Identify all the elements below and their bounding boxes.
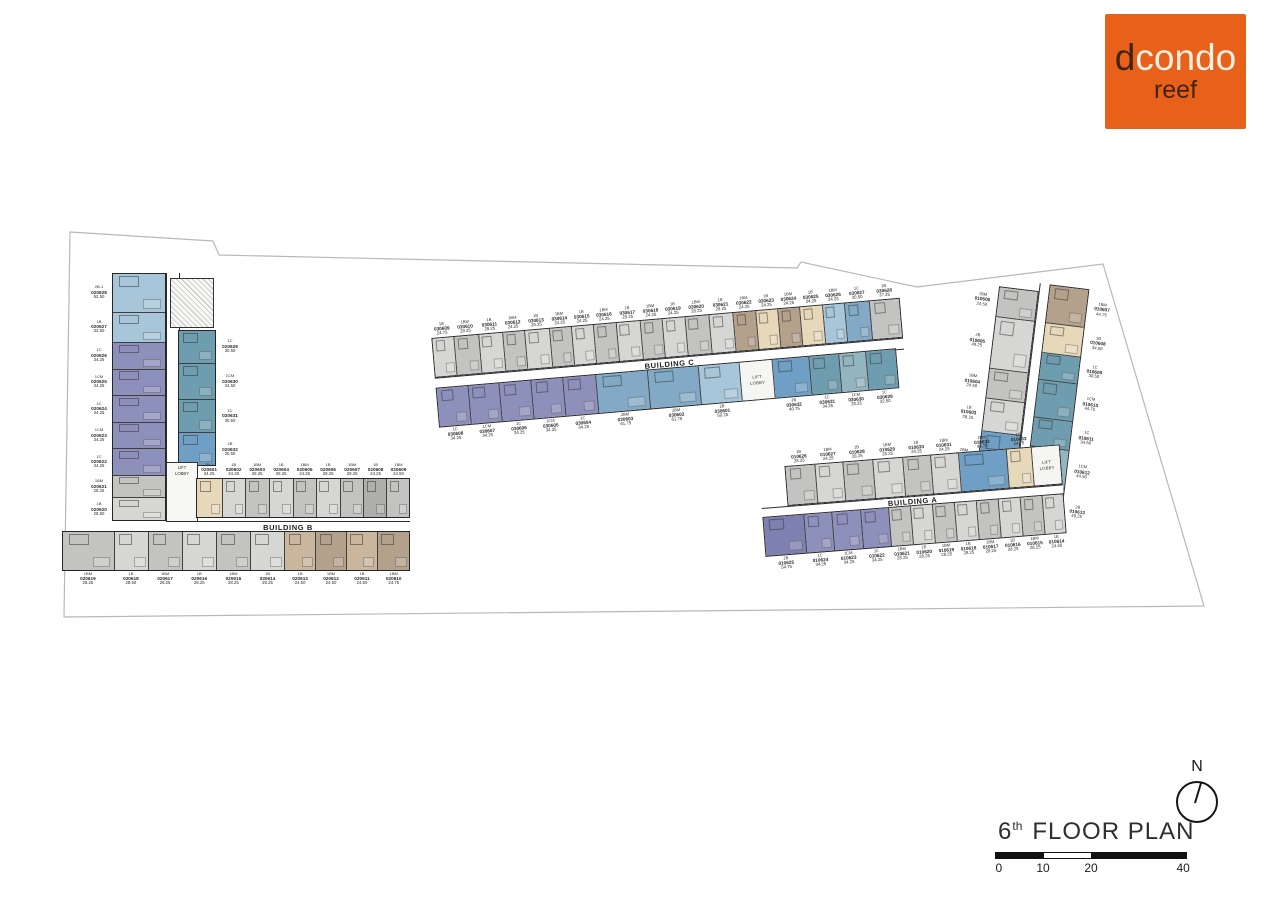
- logo-brand: dcondo: [1115, 39, 1236, 76]
- unit-label-020601: 2B-102060134.25: [196, 462, 222, 478]
- unit-label-strip: 1BM02061928.251B02061828.501BM02061728.2…: [62, 571, 410, 587]
- unit-label-strip: 1C02062930.501CM02063034.501C02063130.50…: [216, 330, 244, 466]
- unit-label-020614: 1B02061428.25: [250, 571, 284, 587]
- unit-020614: [251, 532, 285, 570]
- unit-010607: [1046, 286, 1088, 329]
- unit-010625: [763, 515, 807, 556]
- unit-010618: [955, 501, 980, 541]
- unit-label-020612: 1BM02061224.50: [316, 571, 347, 587]
- unit-010615: [1021, 496, 1046, 536]
- unit-020609: [387, 479, 409, 517]
- scale-bar-segments: [995, 852, 1187, 859]
- plan-title-text: FLOOR PLAN: [1032, 818, 1194, 845]
- unit-020616: [183, 532, 217, 570]
- unit-010610: [1034, 379, 1076, 422]
- building-b-top-row: 2B-102060134.251B02060224.251BM02060328.…: [196, 462, 410, 518]
- unit-block-strip: [196, 478, 410, 518]
- unit-label-010617: 1BM01061728.25: [979, 538, 1002, 556]
- unit-block-strip: [62, 531, 410, 571]
- unit-010617: [977, 499, 1002, 539]
- unit-label-020619: 1BM02061928.25: [62, 571, 114, 587]
- unit-label-020617: 1BM02061728.25: [148, 571, 182, 587]
- unit-label-010606: 1BM01060624.50: [966, 283, 999, 317]
- unit-010614: [1043, 494, 1066, 533]
- unit-010603: [982, 399, 1024, 436]
- unit-label-020613: 1B02061324.50: [285, 571, 316, 587]
- building-b-west-wing: 2B-102062852.501B02062732.501C02062634.2…: [86, 273, 166, 521]
- unit-label-020620: 1B02062028.50: [86, 498, 112, 521]
- scale-segment-0-10: [996, 853, 1044, 858]
- unit-label-010616: 1B01061628.25: [1001, 537, 1024, 555]
- unit-label-010622: 1C01062234.25: [862, 547, 891, 565]
- floor-plan-canvas: 1B03060924.751BM03061028.251B03061128.25…: [0, 0, 1280, 904]
- unit-label-010614: 1B01061424.50: [1045, 533, 1067, 551]
- lobby-label: LOBBY: [1039, 465, 1054, 471]
- unit-label-020627: 1B02062732.50: [86, 312, 112, 342]
- scale-segment-10-20: [1044, 853, 1092, 858]
- unit-010628: [843, 460, 876, 500]
- unit-label-010608: 1B01060834.50: [1081, 327, 1114, 360]
- unit-010624: [804, 512, 835, 552]
- unit-020608: [364, 479, 387, 517]
- unit-label-010620: 1B01062028.25: [913, 544, 936, 562]
- unit-010627: [816, 462, 846, 502]
- unit-010631: [931, 453, 961, 493]
- unit-label-020606: 1B02060628.25: [316, 462, 340, 478]
- scale-tick-20: 20: [1084, 861, 1097, 875]
- lobby-label: LOBBY: [175, 472, 189, 477]
- unit-010633: [1007, 448, 1035, 488]
- unit-label-010609: 1C01060930.50: [1078, 357, 1111, 388]
- unit-020617: [149, 532, 183, 570]
- north-indicator: N: [1166, 758, 1228, 824]
- unit-label-010610: 1CM01061044.75: [1073, 384, 1107, 426]
- unit-020631: [179, 400, 215, 433]
- unit-label-020630: 1CM02063034.50: [216, 363, 244, 399]
- north-arrow-icon: [1166, 776, 1228, 824]
- unit-010608: [1042, 323, 1083, 357]
- unit-label-010623: 1CM01062334.25: [834, 549, 863, 567]
- unit-020606: [317, 479, 341, 517]
- unit-label-020625: 1CM02062534.25: [86, 369, 112, 396]
- unit-010616: [999, 498, 1024, 538]
- unit-label-020608: 1B02060824.25: [364, 462, 387, 478]
- unit-020622: [113, 449, 165, 475]
- logo-reef-text: reef: [1154, 76, 1197, 105]
- unit-020610: [378, 532, 409, 570]
- unit-label-010625: 2B01062554.75: [766, 554, 808, 573]
- unit-label-020607: 1BM02060728.25: [340, 462, 364, 478]
- unit-010623: [833, 510, 864, 550]
- scale-ticks: 0 10 20 40: [995, 859, 1187, 875]
- unit-010619: [933, 503, 958, 543]
- unit-label-010619: 1BM01061928.25: [935, 542, 958, 560]
- unit-010630: [904, 456, 934, 496]
- unit-020601: [197, 479, 223, 517]
- unit-020607: [341, 479, 365, 517]
- unit-020618: [115, 532, 149, 570]
- unit-020613: [285, 532, 316, 570]
- scale-bar: 0 10 20 40: [995, 852, 1187, 875]
- unit-label-020605: 1BM02060524.25: [293, 462, 316, 478]
- building-b-lift-lobby: LIFT LOBBY: [166, 462, 198, 525]
- unit-label-010612: 1CM01061244.50: [1065, 451, 1099, 493]
- building-b-stairs: [170, 278, 214, 328]
- unit-label-020623: 1CM02062334.25: [86, 422, 112, 449]
- unit-020630: [179, 364, 215, 400]
- unit-label-010621: 1BM01062128.25: [890, 545, 913, 563]
- scale-tick-10: 10: [1036, 861, 1049, 875]
- unit-label-010603: 1B01060328.25: [952, 394, 986, 431]
- unit-020619: [63, 532, 115, 570]
- unit-label-010615: 1BM01061528.25: [1023, 535, 1046, 553]
- unit-020632: [179, 433, 215, 465]
- building-b-bottom-row: 1BM02061928.251B02061828.501BM02061728.2…: [62, 531, 410, 587]
- unit-010604: [986, 369, 1027, 403]
- unit-020605: [294, 479, 317, 517]
- unit-010622: [861, 508, 892, 548]
- unit-020621: [113, 476, 165, 499]
- unit-label-020631: 1C02063130.50: [216, 400, 244, 433]
- unit-label-strip: 2B-102060134.251B02060224.251BM02060328.…: [196, 462, 410, 478]
- unit-label-020618: 1B02061828.50: [114, 571, 148, 587]
- unit-block-strip: [112, 273, 166, 521]
- building-b-mid-wing: 1C02062930.501CM02063034.501C02063130.50…: [178, 330, 244, 466]
- unit-label-020611: 1B02061124.50: [347, 571, 378, 587]
- unit-020628: [113, 274, 165, 313]
- north-label: N: [1166, 758, 1228, 776]
- unit-010620: [911, 505, 936, 545]
- lift-lobby-block: LIFTLOBBY: [1032, 446, 1061, 486]
- unit-label-010611: 1C01061134.50: [1069, 422, 1102, 455]
- unit-label-020609: 1BM02060924.50: [387, 462, 410, 478]
- dcondo-reef-logo: dcondo reef: [1105, 14, 1246, 129]
- unit-020625: [113, 370, 165, 396]
- unit-020626: [113, 343, 165, 369]
- unit-010605: [990, 317, 1034, 373]
- unit-label-020610: 1BM02061024.75: [377, 571, 410, 587]
- unit-010626: [786, 465, 819, 505]
- unit-020602: [223, 479, 246, 517]
- unit-label-020604: 1B02060428.25: [269, 462, 293, 478]
- unit-020604: [270, 479, 294, 517]
- unit-020623: [113, 423, 165, 449]
- unit-label-010624: 1C01062434.25: [806, 551, 835, 569]
- unit-label-020603: 1BM02060328.25: [245, 462, 269, 478]
- unit-label-020621: 1BM02062128.25: [86, 475, 112, 498]
- scale-segment-20-40: [1091, 853, 1186, 858]
- unit-020603: [246, 479, 270, 517]
- unit-020624: [113, 396, 165, 422]
- logo-letter-d: d: [1115, 37, 1136, 78]
- unit-020615: [217, 532, 251, 570]
- floor-ordinal: th: [1012, 819, 1022, 833]
- floor-number: 6: [998, 818, 1012, 845]
- unit-label-020615: 1BM02061528.25: [216, 571, 250, 587]
- unit-020627: [113, 313, 165, 343]
- lift-label: LIFT: [178, 466, 187, 471]
- unit-label-020616: 1B02061628.25: [182, 571, 216, 587]
- unit-label-020626: 1C02062634.25: [86, 342, 112, 369]
- unit-label-020602: 1B02060224.25: [222, 462, 245, 478]
- unit-010629: [873, 458, 906, 498]
- unit-label-020622: 1C02062234.25: [86, 449, 112, 476]
- unit-020629: [179, 331, 215, 364]
- unit-010621: [889, 506, 914, 546]
- unit-label-020624: 1C02062434.25: [86, 395, 112, 422]
- unit-020620: [113, 498, 165, 520]
- scale-tick-0: 0: [995, 861, 1002, 875]
- unit-label-020628: 2B-102062852.50: [86, 273, 112, 312]
- unit-label-010607: 1BM01060744.75: [1085, 289, 1119, 331]
- unit-020611: [347, 532, 378, 570]
- unit-label-strip: 2B-102062852.501B02062732.501C02062634.2…: [86, 273, 112, 521]
- logo-condo-text: condo: [1135, 37, 1236, 78]
- building-a: 1B01062628.251BM01062724.251B01062828.25…: [757, 428, 1067, 571]
- unit-label-010604: 1BM01060424.50: [956, 364, 989, 398]
- unit-block-strip: [178, 330, 216, 466]
- unit-label-010618: 1B01061828.25: [957, 540, 980, 558]
- unit-label-020629: 1C02062930.50: [216, 330, 244, 363]
- unit-020612: [316, 532, 347, 570]
- unit-010606: [996, 287, 1037, 321]
- plan-title: 6thFLOOR PLAN: [998, 818, 1194, 846]
- unit-010632: [959, 450, 1011, 492]
- scale-tick-40: 40: [1176, 861, 1189, 875]
